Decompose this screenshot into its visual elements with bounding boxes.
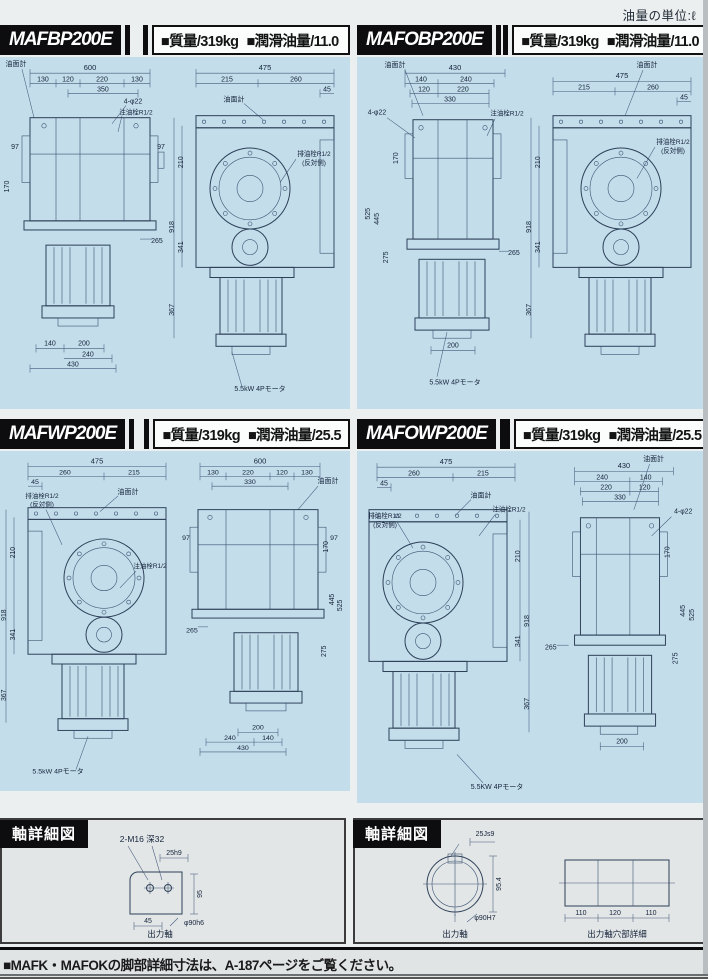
- caption-label: 出力軸: [147, 929, 173, 939]
- dim-label: 330: [244, 479, 256, 486]
- dim-label: 215: [477, 470, 489, 477]
- dim-label: 215: [128, 470, 140, 477]
- dim-label: 120: [609, 910, 621, 917]
- dim-label: φ90h6: [184, 920, 204, 927]
- dim-label: 350: [97, 86, 109, 93]
- dim-label: 475: [91, 457, 104, 466]
- callout-label: 排油栓R1/2: [297, 149, 330, 158]
- dim-label: 110: [575, 910, 586, 917]
- footer-note: ■MAFK・MAFOKの脚部詳細寸法は、A-187ページをご覧ください。: [0, 954, 402, 974]
- motor-outline: [58, 664, 128, 738]
- dimension-lines: [174, 69, 334, 387]
- drawing-area: 475 260 215 45 油面計 注油栓R1/2 排油栓R1/2 (反対側)…: [357, 451, 708, 803]
- dim-label: 220: [600, 484, 612, 491]
- shaft-outline: [130, 872, 182, 914]
- dim-label: 525: [365, 208, 372, 220]
- gearbox-outline: [196, 116, 334, 278]
- panel-header: MAFOBP200E ■質量/319kg ■潤滑油量/11.0: [357, 25, 708, 55]
- callout-label: 4-φ22: [124, 99, 143, 106]
- callout-label: 排油栓R1/2: [368, 511, 401, 520]
- drawing-area: 475 260 215 45 油面計 排油栓R1/2 (反対側) 注油栓R1/2…: [0, 451, 350, 791]
- callout-label: (反対側): [373, 520, 397, 529]
- callout-label: 注油栓R1/2: [490, 109, 523, 118]
- dim-label: 260: [647, 84, 659, 91]
- dim-label: 97: [157, 144, 165, 151]
- dim-label: 918: [524, 615, 531, 627]
- oil-spec: ■潤滑油量/11.0: [607, 30, 699, 51]
- scan-edge: [703, 0, 708, 976]
- dim-label: 120: [62, 76, 74, 83]
- catalog-page: 油量の単位:ℓ MAFBP200E ■質量/319kg ■潤滑油量/11.0: [0, 0, 708, 976]
- dim-label: 475: [259, 63, 272, 72]
- callout-label: 注油栓R1/2: [119, 108, 152, 117]
- dim-label: 油面計: [6, 59, 27, 68]
- dim-label: 200: [78, 340, 90, 347]
- dim-label: 215: [221, 76, 233, 83]
- dim-label: φ90H7: [474, 915, 495, 922]
- callout-label: 油面計: [318, 476, 339, 485]
- dim-label: 45: [31, 479, 39, 486]
- dimension-lines: [451, 838, 675, 922]
- dim-label: 330: [614, 494, 626, 501]
- dimension-lines: [557, 464, 674, 750]
- dim-label: 367: [1, 689, 8, 701]
- dim-label: 220: [457, 86, 469, 93]
- motor-outline: [42, 245, 114, 326]
- dim-label: 130: [207, 470, 219, 477]
- dim-label: 97: [11, 144, 19, 151]
- callout-label: 油面計: [637, 60, 658, 69]
- side-view-drawing: 油面計 430 140 240 120 220 330 4-φ22 注油栓R1/…: [357, 57, 525, 409]
- dim-label: 240: [460, 76, 472, 83]
- dim-label: 130: [37, 76, 49, 83]
- motor-outline: [415, 259, 489, 338]
- dim-label: 330: [444, 96, 456, 103]
- panel-header: MAFWP200E ■質量/319kg ■潤滑油量/25.5: [0, 419, 350, 449]
- dim-label: 240: [224, 735, 236, 742]
- oil-spec: ■潤滑油量/25.5: [608, 424, 701, 445]
- dim-label: 120: [276, 470, 288, 477]
- front-view-drawing: 油面計 475 215 260 45 排油栓R1/2 (反対側) 210 341…: [525, 57, 703, 409]
- shaft-outline: [423, 852, 669, 916]
- dim-label: 45: [380, 480, 388, 487]
- dim-label: 275: [321, 645, 328, 657]
- dim-label: 210: [178, 156, 185, 168]
- oil-spec: ■潤滑油量/11.0: [246, 30, 338, 51]
- side-view-drawing: 油面計 430 240 140 220 120 330 4-φ22 170 44…: [535, 451, 703, 803]
- dim-label: 120: [639, 484, 651, 491]
- dim-label: 918: [169, 221, 176, 233]
- dim-label: 275: [383, 251, 390, 263]
- dim-label: 525: [337, 600, 344, 612]
- dim-label: 140: [640, 474, 652, 481]
- header-divider: [496, 25, 509, 55]
- dim-label: 97: [330, 535, 338, 542]
- dim-label: 430: [449, 63, 462, 72]
- dim-label: 265: [545, 644, 557, 651]
- dim-label: 240: [596, 474, 608, 481]
- dim-label: 475: [616, 71, 629, 80]
- dim-label: 430: [67, 361, 79, 368]
- dim-label: 445: [329, 594, 336, 606]
- oil-unit-note: 油量の単位:ℓ: [622, 5, 696, 24]
- panel-mafwp200e: MAFWP200E ■質量/319kg ■潤滑油量/25.5: [0, 419, 350, 449]
- dim-label: 215: [578, 84, 590, 91]
- dim-label: 210: [535, 156, 542, 168]
- dim-label: 275: [672, 652, 679, 664]
- mass-spec: ■質量/319kg: [161, 30, 239, 51]
- shaft-detail-drawing: 25Js9 95.4 φ90H7 出力軸 110 120 110 出力軸穴部詳細: [355, 822, 703, 940]
- header-divider: [500, 419, 510, 449]
- dim-label: 170: [393, 152, 400, 164]
- caption-label: 出力軸穴部詳細: [587, 929, 647, 939]
- front-view-drawing: 475 260 215 45 油面計 排油栓R1/2 (反対側) 注油栓R1/2…: [0, 451, 178, 791]
- panel-mafowp200e: MAFOWP200E ■質量/319kg ■潤滑油量/25.5: [357, 419, 708, 449]
- dim-label: 430: [618, 461, 630, 470]
- panel-header: MAFBP200E ■質量/319kg ■潤滑油量/11.0: [0, 25, 350, 55]
- spec-box: ■質量/319kg ■潤滑油量/11.0: [152, 25, 350, 55]
- caption-label: 出力軸: [442, 929, 468, 939]
- dim-label: 260: [59, 470, 71, 477]
- dim-label: 265: [151, 238, 163, 245]
- model-badge: MAFBP200E: [0, 25, 121, 55]
- dim-label: 445: [374, 213, 381, 225]
- dim-label: 918: [1, 609, 8, 621]
- callout-label: 油面計: [118, 487, 139, 496]
- callout-label: 油面計: [643, 454, 664, 463]
- panel-header: MAFOWP200E ■質量/319kg ■潤滑油量/25.5: [357, 419, 708, 449]
- side-view-drawing: 油面計 600 130 120 220 130 350 4-φ22 注油栓R1/…: [0, 57, 168, 409]
- dim-label: 45: [680, 94, 688, 101]
- callout-label: (反対側): [661, 146, 685, 155]
- front-view-drawing: 475 215 260 45 油面計 排油栓R1/2 (反対側) 210 341…: [168, 57, 346, 409]
- callout-label: 油面計: [385, 60, 406, 69]
- dim-label: 600: [254, 457, 267, 466]
- dim-label: 918: [526, 221, 533, 233]
- callout-label: 排油栓R1/2: [656, 137, 689, 146]
- callout-label: 油面計: [224, 94, 245, 103]
- callout-label: 4-φ22: [674, 509, 692, 516]
- dim-label: 475: [440, 457, 453, 466]
- callout-label: 注油栓R1/2: [133, 561, 167, 570]
- dim-label: 95: [197, 890, 204, 898]
- dim-label: 25Js9: [476, 831, 495, 838]
- dim-label: 341: [535, 241, 542, 253]
- mass-spec: ■質量/319kg: [521, 30, 599, 51]
- callout-label: (反対側): [302, 158, 326, 167]
- gearbox-outline: [28, 508, 166, 664]
- drawing-area: 油面計 600 130 120 220 130 350 4-φ22 注油栓R1/…: [0, 57, 350, 409]
- spec-box: ■質量/319kg ■潤滑油量/25.5: [514, 419, 708, 449]
- model-badge: MAFOBP200E: [357, 25, 492, 55]
- callout-label: 5.5kW 4Pモータ: [429, 378, 480, 387]
- dim-label: 97: [182, 535, 190, 542]
- dim-label: 45: [144, 918, 152, 925]
- dim-label: 200: [616, 738, 628, 745]
- oil-spec: ■潤滑油量/25.5: [248, 424, 341, 445]
- dim-label: 45: [323, 86, 331, 93]
- shaft-detail-panel-right: 軸詳細図 25Js9 95.4 φ90H7 出力軸 110 12: [353, 818, 708, 944]
- motor-outline: [216, 278, 286, 355]
- dim-label: 210: [515, 550, 522, 562]
- callout-label: 油面計: [471, 490, 492, 499]
- callout-label: 5.5KW 4Pモータ: [471, 782, 523, 791]
- dim-label: 110: [645, 910, 656, 917]
- model-badge: MAFOWP200E: [357, 419, 496, 449]
- dim-label: 367: [524, 698, 531, 710]
- dim-label: 25h9: [166, 850, 182, 857]
- header-divider: [129, 419, 149, 449]
- motor-outline: [584, 655, 655, 734]
- gearbox-outline: [22, 118, 164, 230]
- dim-label: 130: [301, 470, 313, 477]
- dim-label: 341: [10, 629, 17, 641]
- dim-label: 95.4: [496, 877, 503, 891]
- front-view-drawing: 475 260 215 45 油面計 注油栓R1/2 排油栓R1/2 (反対側)…: [357, 451, 535, 803]
- mass-spec: ■質量/319kg: [162, 424, 240, 445]
- shaft-detail-panel-left: 軸詳細図 2-M16 深32 25h9 95 45 φ90h6 出力軸: [0, 818, 346, 944]
- motor-outline: [585, 278, 655, 355]
- callout-label: 5.5kW 4Pモータ: [32, 766, 83, 775]
- dim-label: 265: [508, 250, 520, 257]
- callout-label: 注油栓R1/2: [492, 505, 525, 514]
- dim-label: 430: [237, 745, 249, 752]
- dim-label: 240: [82, 351, 94, 358]
- dim-label: 210: [10, 547, 17, 559]
- dim-label: 367: [169, 304, 176, 316]
- dim-label: 260: [408, 470, 420, 477]
- dim-label: 260: [290, 76, 302, 83]
- dim-label: 367: [526, 304, 533, 316]
- gearbox-outline: [405, 120, 501, 249]
- dim-label: 200: [252, 725, 264, 732]
- dim-label: 220: [96, 76, 108, 83]
- dim-label: 200: [447, 342, 459, 349]
- spec-box: ■質量/319kg ■潤滑油量/11.0: [512, 25, 708, 55]
- header-divider: [125, 25, 148, 55]
- dim-label: 170: [4, 180, 11, 192]
- mass-spec: ■質量/319kg: [523, 424, 601, 445]
- drawing-area: 油面計 430 140 240 120 220 330 4-φ22 注油栓R1/…: [357, 57, 708, 409]
- panel-mafobp200e: MAFOBP200E ■質量/319kg ■潤滑油量/11.0: [357, 25, 708, 55]
- callout-label: 4-φ22: [368, 110, 387, 117]
- dim-label: 600: [84, 63, 97, 72]
- dim-label: 265: [186, 628, 198, 635]
- callout-label: 排油栓R1/2: [25, 491, 59, 500]
- gearbox-outline: [573, 518, 668, 645]
- motor-outline: [230, 633, 302, 711]
- dim-label: 140: [44, 340, 56, 347]
- dimension-lines: [531, 70, 691, 338]
- motor-outline: [389, 672, 459, 749]
- dim-label: 525: [689, 609, 696, 621]
- spec-box: ■質量/319kg ■潤滑油量/25.5: [153, 419, 350, 449]
- dim-label: 341: [178, 241, 185, 253]
- dimension-lines: [6, 463, 166, 770]
- dim-label: 170: [664, 546, 671, 558]
- gearbox-outline: [190, 510, 326, 618]
- shaft-detail-drawing: 2-M16 深32 25h9 95 45 φ90h6 出力軸: [2, 822, 342, 940]
- dim-label: 120: [418, 86, 430, 93]
- callout-label: 5.5kW 4Pモータ: [234, 384, 285, 393]
- callout-label: (反対側): [30, 500, 54, 509]
- callout-label: 2-M16 深32: [120, 834, 165, 844]
- dim-label: 445: [680, 605, 687, 617]
- model-badge: MAFWP200E: [0, 419, 125, 449]
- side-view-drawing: 600 130 220 120 130 330 油面計 97 97 170 44…: [178, 451, 346, 791]
- dim-label: 130: [131, 76, 143, 83]
- dim-label: 220: [242, 470, 254, 477]
- gearbox-outline: [369, 510, 507, 672]
- dim-label: 341: [515, 635, 522, 647]
- panel-mafbp200e: MAFBP200E ■質量/319kg ■潤滑油量/11.0: [0, 25, 350, 55]
- dim-label: 140: [262, 735, 274, 742]
- dim-label: 140: [415, 76, 427, 83]
- dim-label: 170: [323, 541, 330, 553]
